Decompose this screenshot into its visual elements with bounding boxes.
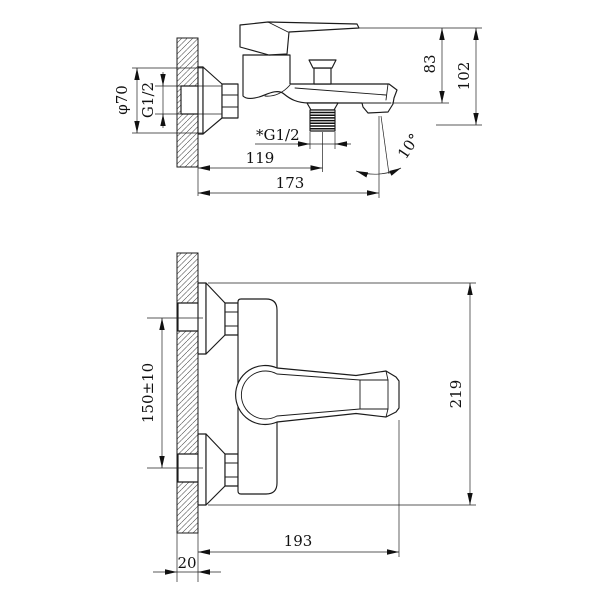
diverter-knob	[309, 60, 336, 84]
dim-phi70-label: φ70	[113, 85, 131, 115]
dim-119-173: 119 173	[198, 149, 379, 193]
dim-20-label: 20	[177, 554, 196, 572]
dim-219-label: 219	[447, 380, 465, 409]
dim-g12-outlet-label: *G1/2	[256, 126, 300, 144]
dim-83-label: 83	[421, 54, 439, 73]
escutcheon-plan-bottom	[198, 434, 238, 505]
escutcheon-plan-top	[198, 283, 238, 354]
connector-nut-side	[222, 84, 238, 118]
dim-102-label: 102	[455, 62, 473, 91]
plan-view: 150±10 219 193 20	[139, 253, 476, 582]
dim-angle-label: 10°	[394, 130, 424, 162]
dim-150-label: 150±10	[139, 363, 157, 423]
dim-173-label: 173	[276, 174, 305, 192]
wall-hatch-plan	[177, 253, 198, 533]
lever-handle-side	[240, 22, 359, 55]
dim-193: 193	[198, 420, 399, 557]
dim-20: 20	[153, 554, 221, 572]
mixer-installation-drawing: φ70 G1/2 83 102	[0, 0, 600, 600]
dim-193-label: 193	[284, 532, 313, 550]
dim-g12-wall-label: G1/2	[139, 82, 157, 118]
side-view: φ70 G1/2 83 102	[113, 22, 482, 198]
dim-119-label: 119	[246, 149, 275, 167]
lever-handle-plan	[236, 366, 399, 425]
escutcheon-side	[198, 67, 222, 134]
dim-angle-10: 10°	[356, 116, 424, 198]
shower-outlet-thread	[307, 103, 338, 131]
technical-drawing-page: φ70 G1/2 83 102	[0, 0, 600, 600]
